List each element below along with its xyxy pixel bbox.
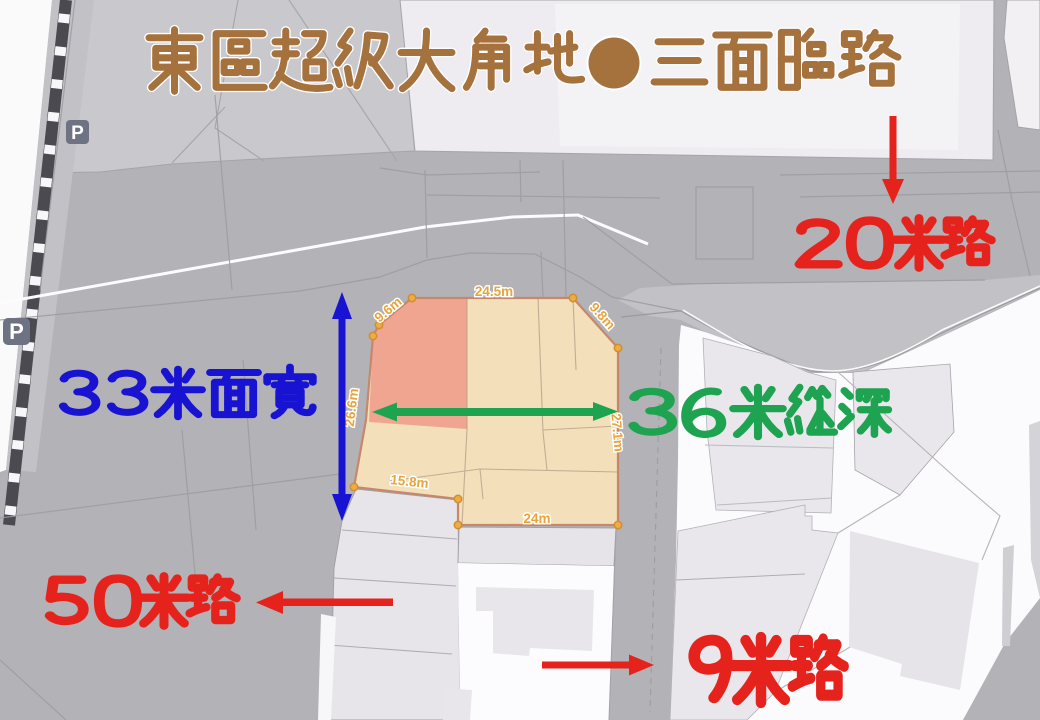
svg-text:24m: 24m [523, 511, 550, 526]
svg-text:P: P [9, 319, 24, 344]
svg-text:24.5m: 24.5m [475, 284, 513, 299]
svg-text:P: P [71, 123, 84, 144]
